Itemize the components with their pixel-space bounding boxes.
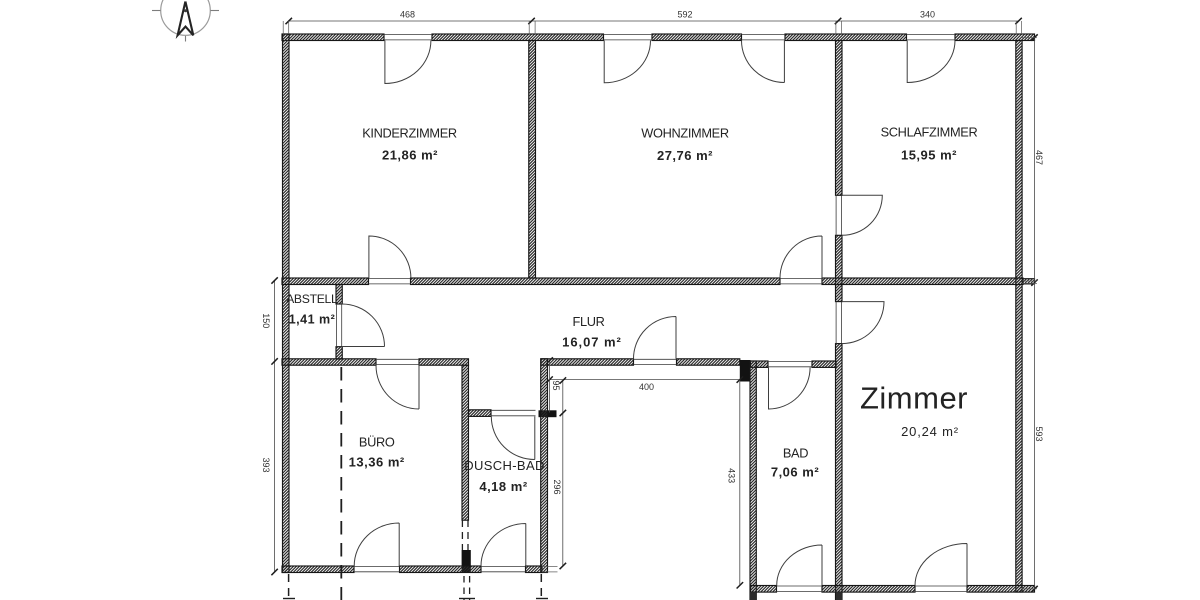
svg-text:433: 433 [727,468,737,483]
svg-text:Zimmer: Zimmer [860,381,968,416]
svg-text:1,41 m²: 1,41 m² [289,313,336,327]
svg-text:WOHNZIMMER: WOHNZIMMER [641,126,729,141]
svg-text:4,18 m²: 4,18 m² [479,479,527,494]
svg-text:BÜRO: BÜRO [359,435,395,450]
svg-text:400: 400 [639,382,654,392]
svg-text:468: 468 [400,10,415,20]
svg-text:340: 340 [920,10,935,20]
svg-text:7,06 m²: 7,06 m² [771,465,819,480]
svg-text:150: 150 [261,313,271,328]
svg-text:SCHLAFZIMMER: SCHLAFZIMMER [881,125,978,140]
svg-text:21,86 m²: 21,86 m² [382,148,438,163]
svg-text:296: 296 [552,479,562,494]
svg-text:593: 593 [1034,426,1044,441]
svg-text:393: 393 [261,457,271,472]
svg-text:15,95 m²: 15,95 m² [901,148,957,163]
svg-text:13,36 m²: 13,36 m² [349,455,405,470]
svg-text:592: 592 [677,10,692,20]
svg-text:BAD: BAD [783,446,808,461]
svg-text:ABSTELL: ABSTELL [286,292,338,306]
svg-text:467: 467 [1034,150,1044,165]
svg-text:20,24 m²: 20,24 m² [901,424,959,439]
svg-text:KINDERZIMMER: KINDERZIMMER [362,126,457,141]
svg-text:95: 95 [551,380,561,390]
svg-text:FLUR: FLUR [572,314,604,329]
svg-text:16,07 m²: 16,07 m² [562,335,622,350]
svg-text:DUSCH-BAD: DUSCH-BAD [464,458,544,473]
svg-text:27,76 m²: 27,76 m² [657,148,713,163]
